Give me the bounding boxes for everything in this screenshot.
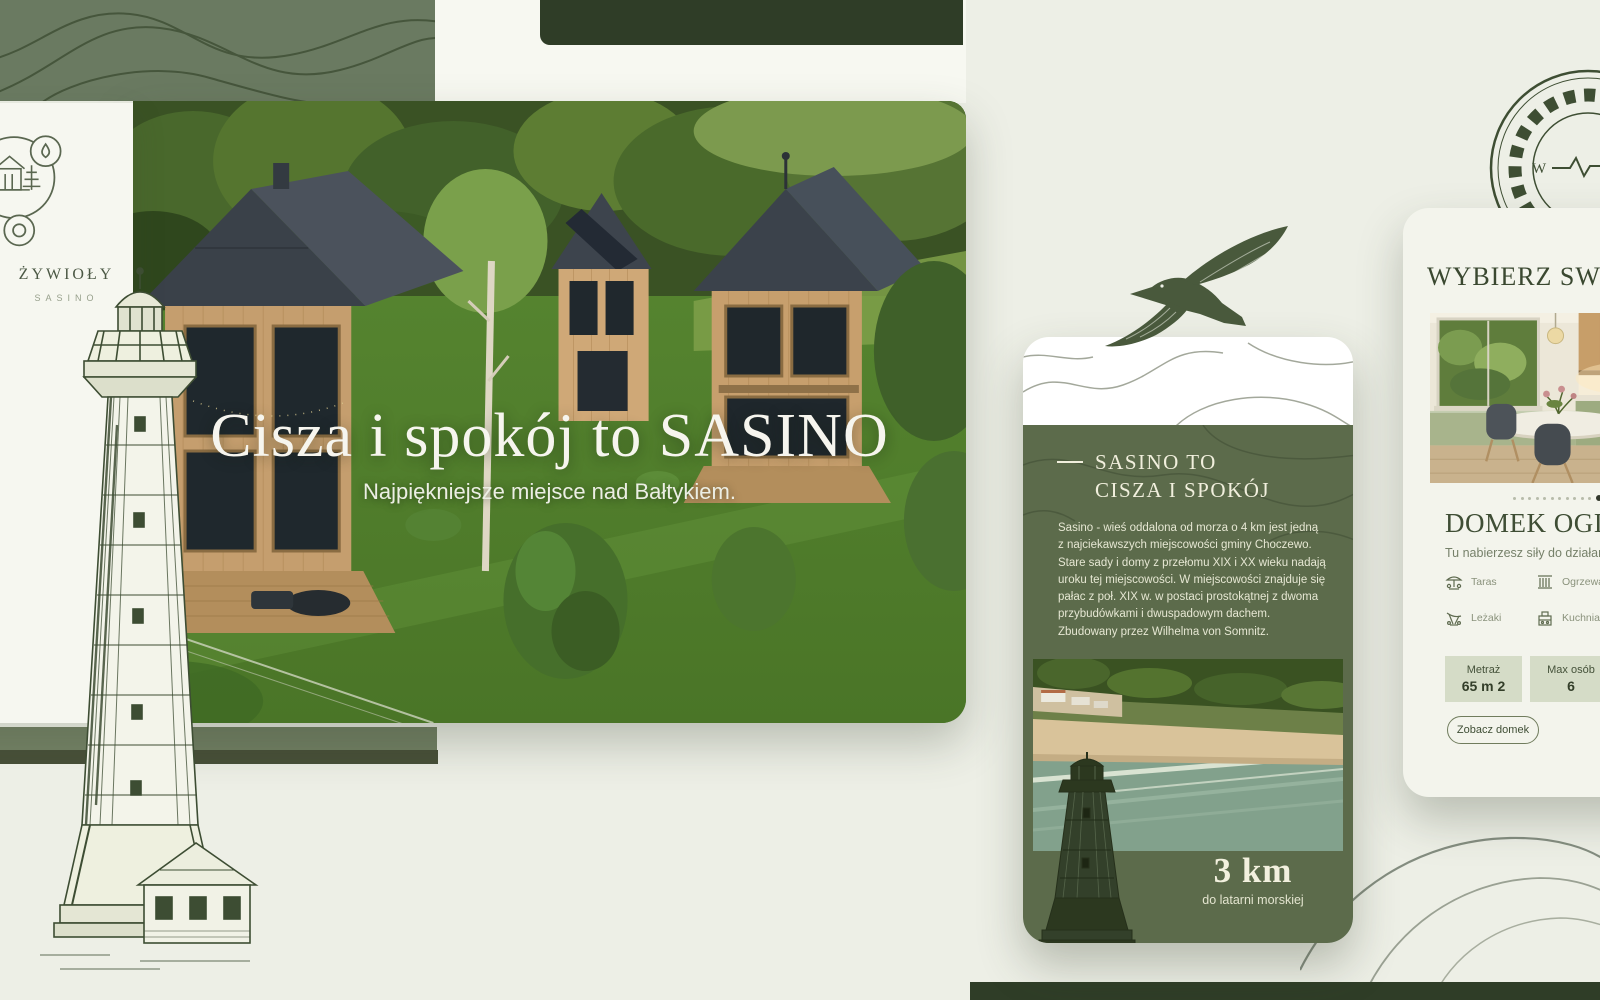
about-heading: SASINO TO CISZA I SPOKÓJ <box>1095 448 1270 505</box>
heading-dash <box>1057 461 1083 463</box>
about-paragraph: Sasino - wieś oddalona od morza o 4 km j… <box>1058 520 1326 641</box>
top-dark-bar <box>540 0 963 45</box>
feature-label: Ogrzewa <box>1562 576 1600 588</box>
house-interior-photo[interactable] <box>1430 313 1600 483</box>
carousel-dot[interactable] <box>1596 495 1600 501</box>
carousel-dot[interactable] <box>1543 497 1546 500</box>
stat-value: 6 <box>1567 678 1575 694</box>
house-tagline: Tu nabierzesz siły do działania <box>1445 546 1600 560</box>
lighthouse-small-illustration <box>1035 750 1137 943</box>
phone-mockup-chooser: WYBIERZ SWÓJ <box>1403 208 1600 797</box>
feature-label: Kuchnia <box>1562 612 1600 624</box>
sage-color-block <box>0 0 435 101</box>
dining-room-photo <box>1430 313 1600 483</box>
carousel-dot[interactable] <box>1573 497 1576 500</box>
chooser-heading: WYBIERZ SWÓJ <box>1427 262 1600 292</box>
carousel-dot[interactable] <box>1551 497 1554 500</box>
carousel-dot[interactable] <box>1536 497 1539 500</box>
design-canvas: { "brand": { "logo_text": "ŻYWIOŁY", "lo… <box>0 0 1600 1000</box>
see-house-button[interactable]: Zobacz domek <box>1447 716 1539 744</box>
feature-taras: Taras <box>1445 574 1497 590</box>
contour-lines-sage <box>0 0 435 101</box>
deckchair-icon <box>1445 610 1463 626</box>
compass-west-letter: W <box>1532 161 1547 177</box>
stat-label: Metraż <box>1467 664 1501 676</box>
house-name: DOMEK OGIE <box>1445 508 1600 539</box>
carousel-dot[interactable] <box>1528 497 1531 500</box>
carousel-dot[interactable] <box>1513 497 1516 500</box>
carousel-dot[interactable] <box>1581 497 1584 500</box>
contour-lines-map <box>1023 337 1353 425</box>
seagull-icon <box>1072 210 1294 350</box>
carousel-dot[interactable] <box>1558 497 1561 500</box>
logo-emblem-icon <box>0 123 74 255</box>
lighthouse-illustration <box>20 265 264 991</box>
carousel-dot[interactable] <box>1588 497 1591 500</box>
carousel-dots <box>1513 495 1600 501</box>
distance-value: 3 km <box>1173 851 1333 891</box>
terrace-icon <box>1445 574 1463 590</box>
about-heading-line2: CISZA I SPOKÓJ <box>1095 476 1270 504</box>
stat-metraz: Metraż 65 m 2 <box>1445 656 1522 702</box>
feature-lezaki: Leżaki <box>1445 610 1501 626</box>
carousel-dot[interactable] <box>1521 497 1524 500</box>
stat-value: 65 m 2 <box>1462 678 1506 694</box>
feature-label: Leżaki <box>1471 612 1501 624</box>
stat-label: Max osób <box>1547 664 1595 676</box>
phone-mockup-about: SASINO TO CISZA I SPOKÓJ Sasino - wieś o… <box>1023 337 1353 943</box>
about-heading-line1: SASINO TO <box>1095 448 1270 476</box>
feature-label: Taras <box>1471 576 1497 588</box>
kitchen-icon <box>1536 610 1554 626</box>
feature-kuchnia: Kuchnia <box>1536 610 1600 626</box>
carousel-dot[interactable] <box>1566 497 1569 500</box>
distance-label: do latarni morskiej <box>1173 893 1333 907</box>
radiator-icon <box>1536 574 1554 590</box>
stat-max-osob: Max osób 6 <box>1530 656 1600 702</box>
bottom-right-dark-bar <box>970 982 1600 1000</box>
feature-ogrzewanie: Ogrzewa <box>1536 574 1600 590</box>
